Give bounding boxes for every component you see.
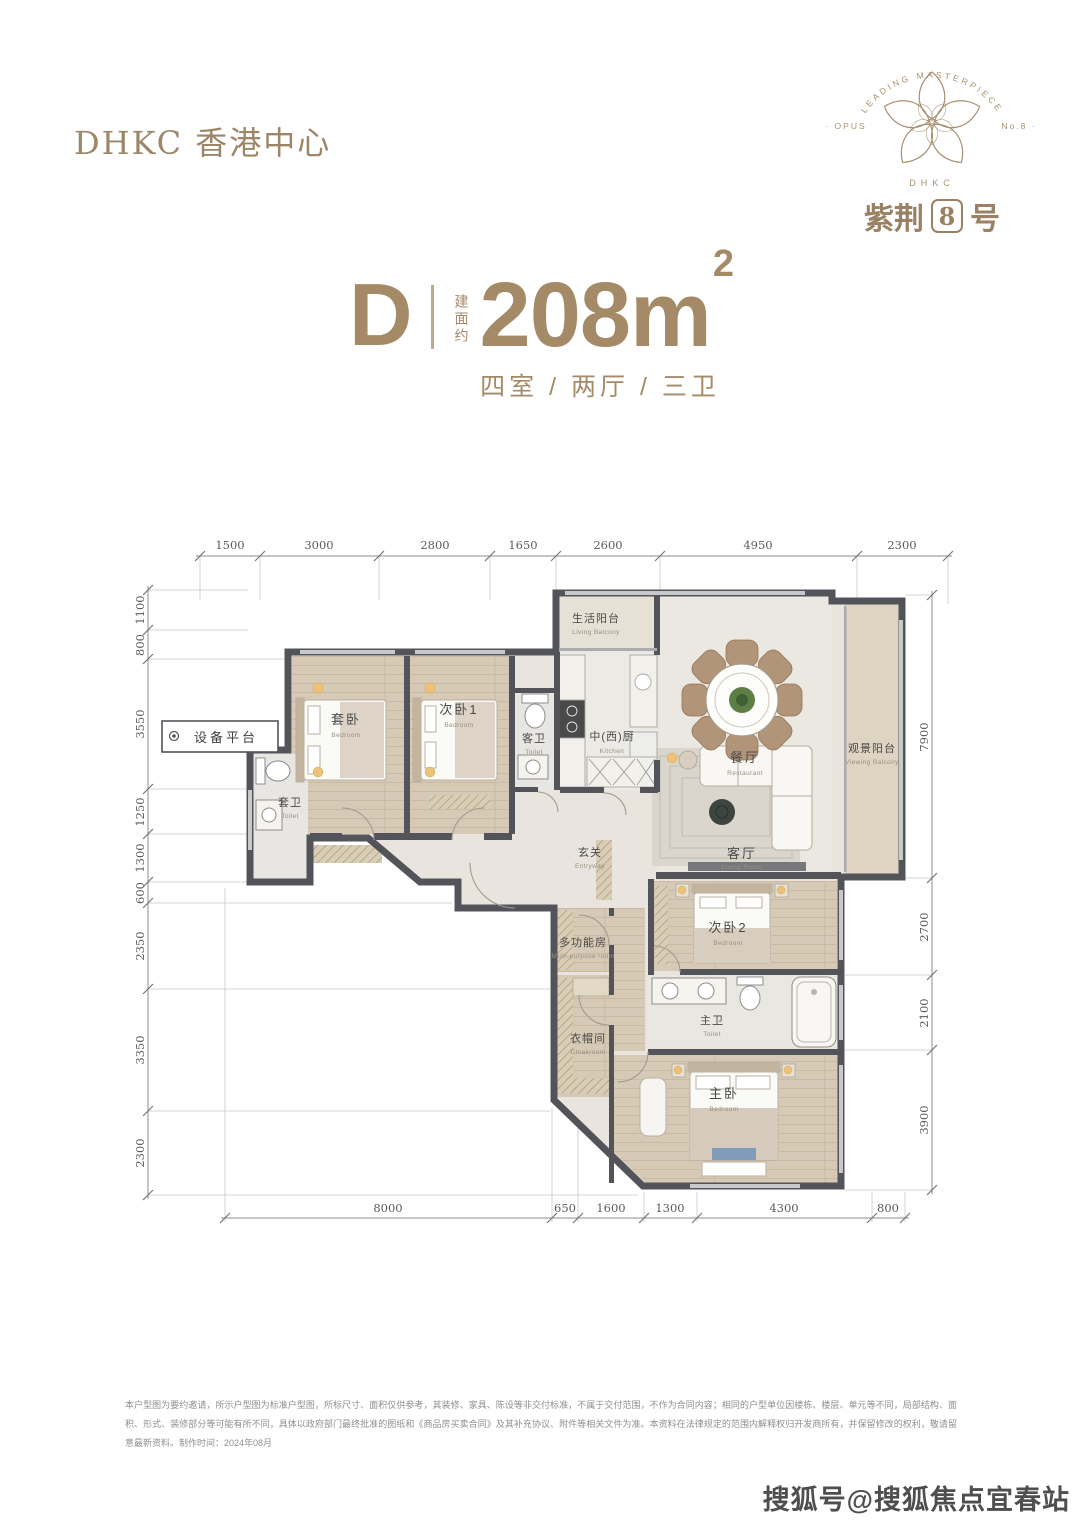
dim-top-4: 2600 <box>593 538 622 552</box>
label-living-room: 客厅 <box>727 846 757 861</box>
floor-plan: 1500 3000 2800 1650 2600 4950 2300 1100 … <box>0 0 1080 1527</box>
dim-left-2: 3550 <box>133 709 147 738</box>
svg-text:Viewing Balcony: Viewing Balcony <box>845 759 899 766</box>
dim-right-3: 3900 <box>917 1105 931 1134</box>
label-viewing-balcony: 观景阳台 <box>848 741 896 755</box>
label-master-toilet: 主卫 <box>700 1014 724 1027</box>
label-living-balcony: 生活阳台 <box>572 611 620 625</box>
disclaimer: 本户型图为要约邀请，所示户型图为标准户型图，所标尺寸、面积仅供参考，其装修、家具… <box>125 1396 957 1453</box>
svg-text:Multi-purpose room: Multi-purpose room <box>551 953 614 960</box>
dim-left-8: 2300 <box>133 1138 147 1167</box>
dim-right-1: 2700 <box>917 912 931 941</box>
dim-left-7: 3350 <box>133 1035 147 1064</box>
dim-left-5: 600 <box>133 882 147 904</box>
label-cloakroom: 衣帽间 <box>570 1031 606 1045</box>
label-restaurant: 餐厅 <box>730 750 760 765</box>
dim-bottom-5: 800 <box>877 1201 899 1215</box>
label-suite-bedroom: 套卧 <box>331 712 361 727</box>
dim-left-0: 1100 <box>133 595 147 624</box>
svg-text:Entryway: Entryway <box>575 863 605 870</box>
dim-left-6: 2350 <box>133 931 147 960</box>
watermark: 搜狐号@搜狐焦点宜春站 <box>763 1478 1070 1517</box>
svg-text:Cloakroom: Cloakroom <box>570 1049 605 1056</box>
svg-text:Kitchen: Kitchen <box>600 748 624 755</box>
dim-top-3: 1650 <box>508 538 537 552</box>
label-kitchen: 中(西)厨 <box>589 730 634 743</box>
dim-left-3: 1250 <box>133 797 147 826</box>
dim-bottom-1: 650 <box>554 1201 576 1215</box>
dim-right-2: 2100 <box>917 998 931 1027</box>
label-bedroom1: 次卧1 <box>439 702 478 717</box>
equipment-platform-label: 设备平台 <box>194 730 258 745</box>
svg-text:Bedroom: Bedroom <box>331 732 360 739</box>
label-bedroom2: 次卧2 <box>708 920 747 935</box>
svg-text:Living Balcony: Living Balcony <box>572 629 620 636</box>
label-multi-room: 多功能房 <box>559 935 607 949</box>
dim-bottom-0: 8000 <box>373 1201 402 1215</box>
svg-text:Bedroom: Bedroom <box>713 940 742 947</box>
svg-text:Restaurant: Restaurant <box>727 770 763 777</box>
coffee-table <box>709 799 735 825</box>
svg-text:Toilet: Toilet <box>703 1031 721 1038</box>
svg-text:Toilet: Toilet <box>525 749 543 756</box>
dim-bottom-2: 1600 <box>596 1201 625 1215</box>
page: DHKC 香港中心 LEADING MASTERPIECE · OPUS No.… <box>0 0 1080 1527</box>
label-suite-toilet: 套卫 <box>278 796 302 809</box>
label-entryway: 玄关 <box>578 845 602 859</box>
dim-top-0: 1500 <box>215 538 244 552</box>
svg-text:Bedroom: Bedroom <box>444 722 473 729</box>
dim-top-1: 3000 <box>304 538 333 552</box>
dim-bottom-3: 1300 <box>655 1201 684 1215</box>
dim-bottom-4: 4300 <box>769 1201 798 1215</box>
svg-text:Bedroom: Bedroom <box>709 1106 738 1113</box>
svg-text:Toilet: Toilet <box>281 813 299 820</box>
dim-top-2: 2800 <box>420 538 449 552</box>
equipment-platform: 设备平台 <box>162 721 278 752</box>
label-guest-toilet: 客卫 <box>522 731 546 745</box>
dim-left-1: 800 <box>133 634 147 656</box>
dim-top-6: 2300 <box>887 538 916 552</box>
svg-text:Living Room: Living Room <box>722 864 763 871</box>
dim-left-4: 1300 <box>133 843 147 872</box>
dining-table <box>682 640 802 760</box>
label-master-bedroom: 主卧 <box>709 1086 739 1101</box>
dim-top-5: 4950 <box>743 538 772 552</box>
dim-right-0: 7900 <box>917 722 931 751</box>
